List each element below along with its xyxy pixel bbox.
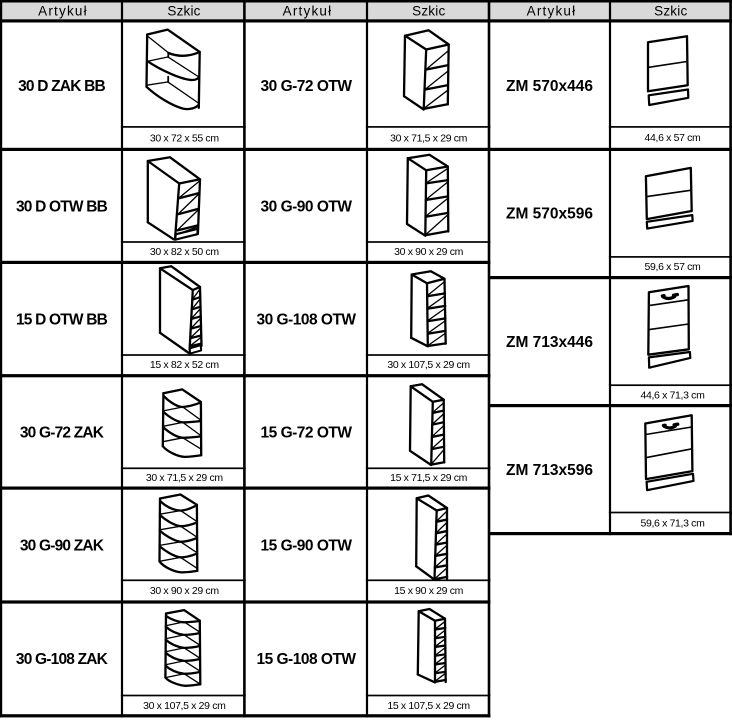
svg-text:ZM 570x446: ZM 570x446 — [506, 78, 593, 95]
svg-text:30 D ZAK BB: 30 D ZAK BB — [18, 78, 105, 95]
svg-text:Szkic: Szkic — [167, 4, 200, 19]
svg-text:30 x 90 x 29 cm: 30 x 90 x 29 cm — [394, 246, 463, 258]
svg-text:44,6 x 71,3 cm: 44,6 x 71,3 cm — [641, 389, 706, 401]
svg-text:15 D OTW BB: 15 D OTW BB — [16, 311, 108, 328]
svg-text:30 G-108 OTW: 30 G-108 OTW — [256, 311, 356, 328]
svg-text:Artykuł: Artykuł — [527, 4, 577, 19]
svg-text:15 x 90 x 29 cm: 15 x 90 x 29 cm — [394, 585, 463, 597]
svg-text:30 x 82 x 50 cm: 30 x 82 x 50 cm — [150, 246, 219, 258]
svg-text:15 G-72 OTW: 15 G-72 OTW — [261, 424, 353, 441]
svg-text:30 x 72 x 55 cm: 30 x 72 x 55 cm — [150, 133, 219, 145]
svg-text:30 x 107,5 x 29 cm: 30 x 107,5 x 29 cm — [387, 359, 470, 371]
svg-text:Szkic: Szkic — [654, 4, 687, 19]
svg-text:59,6 x 57 cm: 59,6 x 57 cm — [645, 261, 702, 273]
svg-text:30 G-72 ZAK: 30 G-72 ZAK — [20, 424, 105, 441]
svg-text:15 x 107,5 x 29 cm: 15 x 107,5 x 29 cm — [387, 700, 470, 712]
svg-text:Szkic: Szkic — [412, 4, 445, 19]
svg-text:30 G-72 OTW: 30 G-72 OTW — [261, 78, 353, 95]
svg-text:15 G-108 OTW: 15 G-108 OTW — [256, 651, 356, 668]
svg-text:30 G-90 ZAK: 30 G-90 ZAK — [20, 537, 105, 554]
svg-text:15 x 71,5 x 29 cm: 15 x 71,5 x 29 cm — [390, 472, 468, 484]
svg-text:30 x 107,5 x 29 cm: 30 x 107,5 x 29 cm — [143, 700, 226, 712]
svg-text:Artykuł: Artykuł — [38, 4, 88, 19]
svg-text:30 D OTW BB: 30 D OTW BB — [16, 198, 108, 215]
svg-text:30 x 71,5 x 29 cm: 30 x 71,5 x 29 cm — [390, 133, 468, 145]
svg-text:59,6 x 71,3 cm: 59,6 x 71,3 cm — [641, 517, 706, 529]
svg-text:15 G-90 OTW: 15 G-90 OTW — [261, 537, 353, 554]
svg-text:ZM 570x596: ZM 570x596 — [506, 206, 593, 223]
svg-text:ZM 713x596: ZM 713x596 — [506, 462, 593, 479]
svg-text:Artykuł: Artykuł — [283, 4, 333, 19]
svg-text:44,6 x 57 cm: 44,6 x 57 cm — [645, 132, 702, 144]
svg-text:15 x 82 x 52 cm: 15 x 82 x 52 cm — [150, 359, 219, 371]
svg-text:30 x 90 x 29 cm: 30 x 90 x 29 cm — [150, 585, 219, 597]
svg-text:30 G-108 ZAK: 30 G-108 ZAK — [16, 651, 109, 668]
svg-text:30 G-90 OTW: 30 G-90 OTW — [261, 198, 353, 215]
svg-text:30 x 71,5 x 29 cm: 30 x 71,5 x 29 cm — [146, 472, 224, 484]
svg-text:ZM 713x446: ZM 713x446 — [506, 334, 593, 351]
